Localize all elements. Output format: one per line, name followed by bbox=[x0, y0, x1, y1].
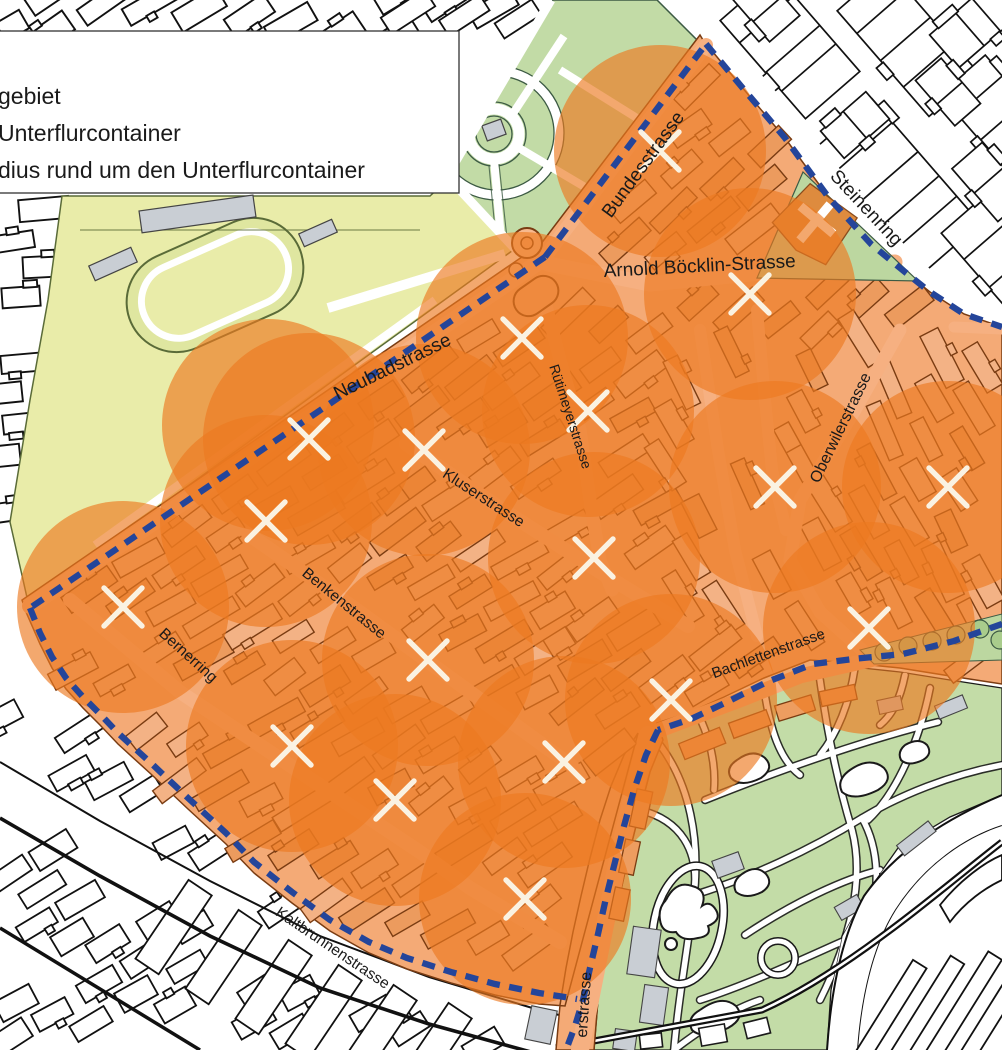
svg-text:gebiet: gebiet bbox=[0, 83, 61, 109]
svg-text:dius rund um den Unterflurcont: dius rund um den Unterflurcontainer bbox=[0, 157, 365, 183]
svg-text:Unterflurcontainer: Unterflurcontainer bbox=[0, 120, 181, 146]
